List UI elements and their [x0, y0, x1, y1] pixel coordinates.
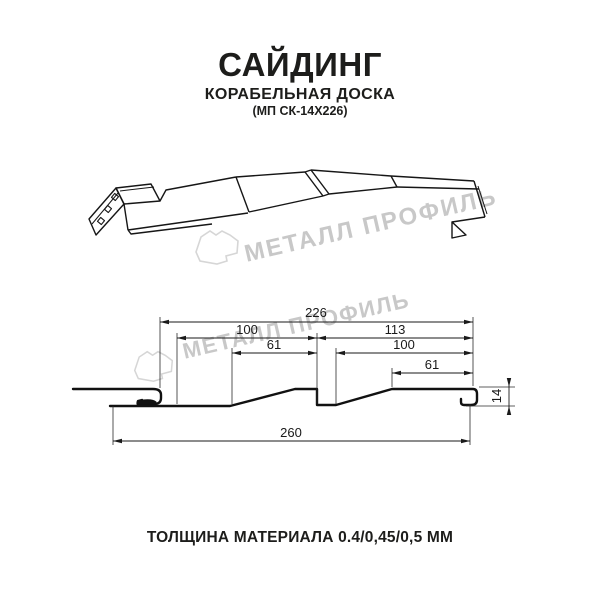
- dim-label-visible-width: 226: [305, 306, 327, 320]
- page-title: САЙДИНГ: [0, 46, 600, 84]
- thickness-note: ТОЛЩИНА МАТЕРИАЛА 0.4/0,45/0,5 ММ: [0, 529, 600, 547]
- dim-label-profile-height: 14: [490, 389, 504, 403]
- dim-label-total-width: 260: [280, 426, 302, 440]
- product-subtitle: КОРАБЕЛЬНАЯ ДОСКА: [0, 86, 600, 104]
- siding-section-drawing: [73, 389, 477, 406]
- extension-lines: [113, 317, 515, 445]
- dim-label-left-flat: 61: [267, 338, 281, 352]
- dim-label-left-pitch: 100: [236, 323, 258, 337]
- dim-label-right-span: 113: [385, 323, 406, 337]
- dim-label-right-flat: 61: [425, 358, 439, 372]
- dimension-lines: [113, 322, 509, 441]
- siding-3d-drawing: [89, 170, 487, 238]
- product-sheet: САЙДИНГ КОРАБЕЛЬНАЯ ДОСКА (МП СК-14Х226)…: [0, 0, 600, 600]
- product-code: (МП СК-14Х226): [0, 104, 600, 118]
- dim-label-right-pitch: 100: [393, 338, 415, 352]
